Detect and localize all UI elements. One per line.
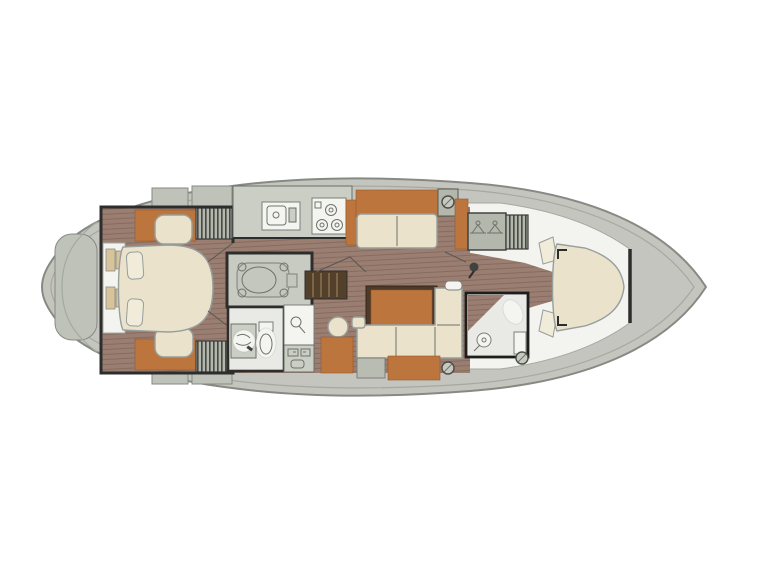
deck-hatch-small [445,281,462,290]
dinette-backrest [356,190,438,217]
stern-swim-platform [55,234,97,340]
sink-faucet [289,208,296,222]
deck-hatch [152,188,188,208]
shower-rose [477,333,491,347]
wardrobe-port [196,208,233,239]
deck-hatch [192,186,232,208]
dinette-end-cabinet [455,199,468,249]
engine-block [237,263,289,297]
pillow [126,251,144,279]
salon-bench [388,356,440,380]
galley [233,186,358,245]
companionway-steps [305,271,347,299]
round-stool [328,317,348,337]
head-counter [514,332,526,354]
slatted-wardrobe [506,215,528,249]
shower-stall [284,305,314,345]
starboard-cabinet [321,337,353,373]
gray-stool [357,358,385,378]
bedside-shelf [106,287,115,309]
mast-base [470,263,479,272]
floor-plan-canvas [0,0,763,572]
engine-room [227,253,312,307]
bedside-shelf [106,249,115,271]
sailboat-floor-plan [0,0,763,572]
settee-arm [352,317,365,328]
aft-head [228,305,314,372]
hanging-lockers [468,213,528,250]
pillow [126,298,144,326]
salon-table [371,290,432,326]
salon [352,281,462,380]
cabin-seat-port [155,215,192,244]
gearbox [287,274,297,287]
